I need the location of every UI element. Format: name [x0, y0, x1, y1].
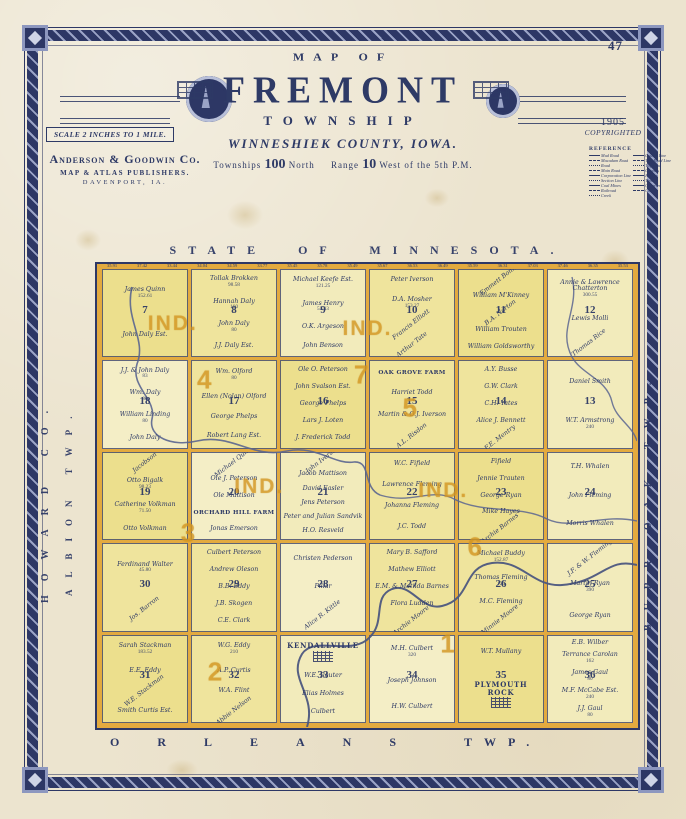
- lot-number: 35.45: [287, 263, 297, 268]
- parcel-owner-name: F.E. Mentry: [484, 424, 518, 449]
- lot-number: 35.53: [618, 263, 628, 268]
- legend-line-sample: [633, 190, 644, 191]
- section-cell-18: 18J.J. & John Daly83Wm. Daly80William Li…: [102, 360, 188, 448]
- parcel-label: Alice J. Bennett: [476, 418, 525, 425]
- parcel-owner-name: John Benson: [303, 343, 343, 350]
- parcel-label: Elias Holmes: [302, 691, 344, 698]
- parcel-acreage: 152.87: [477, 558, 525, 563]
- parcel-label: Archie Barnes: [481, 513, 521, 540]
- copyright-label: COPYRIGHTED: [578, 128, 648, 137]
- legend-line-sample: [633, 180, 644, 181]
- parcel-owner-name: Martin & O.J. Iverson: [378, 412, 446, 419]
- legend-line-sample: [589, 195, 600, 196]
- parcel-label: O.K. Argeson: [302, 324, 344, 331]
- south-label-orleans: ORLEANS: [110, 735, 434, 750]
- section-cell-20: 20Michael QuinnOle J. PetersonOle Mattis…: [191, 452, 277, 540]
- lot-number: 37.03: [528, 263, 538, 268]
- section-cell-7: 7James Quinn152.61John Daly Est.: [102, 269, 188, 357]
- parcel-owner-name: J.C. Todd: [398, 524, 426, 531]
- section-number: 26: [496, 578, 507, 590]
- parcel-label: William Goldsworthy: [468, 344, 535, 351]
- section-number: 10: [407, 304, 418, 316]
- parcel-acreage: 240: [562, 695, 619, 700]
- publisher-block: Anderson & Goodwin Co. MAP & ATLAS PUBLI…: [40, 152, 210, 186]
- section-cell-30: 30Ferdinand Walter45.80Jos. Barron: [102, 543, 188, 631]
- section-number: 11: [496, 304, 506, 316]
- parcel-acreage: 71.50: [114, 509, 175, 514]
- south-label-twp: TWP.: [464, 735, 541, 750]
- parcel-owner-name: Lars J. Loten: [303, 418, 344, 425]
- parcel-label: Culbert: [311, 709, 335, 716]
- parcel-label: Lewis Molli: [572, 316, 609, 323]
- parcel-acreage: 162: [562, 659, 618, 664]
- sections-grid: 7James Quinn152.61John Daly Est.8Tollak …: [102, 269, 633, 723]
- section-cell-16: 16Ole O. PetersonJohn Svalson Est.George…: [280, 360, 366, 448]
- legend-title: REFERENCE: [589, 146, 653, 152]
- legend-line-sample: [589, 185, 600, 186]
- corner-ornament: [638, 767, 664, 793]
- legend-right-column: County LineTwp Road LineTwp LineCountryH…: [633, 153, 671, 198]
- parcel-label: Michael Keefe Est.121.25: [293, 277, 353, 289]
- parcel-label: J.C. Todd: [398, 524, 426, 531]
- parcel-owner-name: Mathew Elliott: [388, 567, 435, 574]
- parcel-label: H.W. Culbert: [391, 704, 432, 711]
- parcel-owner-name: E.B. Wilber: [572, 640, 608, 647]
- section-number: 24: [585, 486, 596, 498]
- section-number: 28: [318, 578, 329, 590]
- parcel-acreage: 210: [218, 650, 250, 655]
- atlas-page: 47 MAP OF FREMONT TOWNSHIP WINNESHIEK CO…: [0, 0, 686, 819]
- section-cell-35: 35W.T. MullanyPLYMOUTH ROCK: [458, 635, 544, 723]
- section-number: 31: [140, 669, 151, 681]
- parcel-owner-name: George Ryan: [569, 613, 610, 620]
- parcel-acreage: 80: [578, 713, 603, 718]
- parcel-label: John Svalson Est.: [295, 384, 351, 391]
- lot-number: 35.49: [347, 263, 357, 268]
- legend-line-sample: [589, 155, 600, 156]
- parcel-label: Alice R. Kittle: [304, 599, 343, 631]
- parcel-label: Morris Whalen: [566, 521, 614, 528]
- twp-suffix: North: [289, 160, 315, 170]
- parcel-acreage: 80: [216, 376, 253, 381]
- section-cell-8: 8Tollak Brokken98.58Hannah Daly160John D…: [191, 269, 277, 357]
- parcel-label: H.O. Resveld: [302, 528, 343, 535]
- parcel-owner-name: William Goldsworthy: [468, 344, 535, 351]
- lot-number: 36.31: [498, 263, 508, 268]
- section-number: 9: [320, 304, 326, 316]
- parcel-label: Thomas Rice: [572, 328, 609, 357]
- section-cell-34: 34M.H. Culbert320Joseph JohnsonH.W. Culb…: [369, 635, 455, 723]
- section-number: 13: [585, 395, 596, 407]
- parcel-owner-name: Robert Lang Est.: [207, 433, 261, 440]
- parcel-label: James Quinn152.61: [125, 287, 166, 299]
- brick-ornament-icon: [473, 81, 509, 99]
- parcel-label: Michael Buddy152.87: [477, 551, 525, 563]
- section-number: 22: [407, 486, 418, 498]
- parcel-label: T.H. Whalen: [571, 464, 610, 471]
- lot-number: 37.42: [137, 263, 147, 268]
- parcel-label: Daniel Smith: [569, 379, 611, 386]
- parcel-label: Peter Iverson: [391, 277, 434, 284]
- lot-number: 35.59: [468, 263, 478, 268]
- corner-ornament: [638, 25, 664, 51]
- section-number: 19: [140, 486, 151, 498]
- reference-legend: REFERENCE Mud RoadMacadam RoadRoadMain R…: [589, 146, 653, 198]
- section-number: 16: [318, 395, 329, 407]
- parcel-label: W.C. Fifield: [394, 461, 430, 468]
- parcel-owner-name: Smith Curtis Est.: [118, 708, 173, 715]
- section-cell-33: 33KENDALLVILLEW.E. ReuterElias HolmesCul…: [280, 635, 366, 723]
- section-number: 33: [318, 669, 329, 681]
- survey-lot-numbers: 35.9137.4233.4434.0434.5933.7735.4535.78…: [97, 263, 638, 268]
- parcel-owner-name: W.T. Mullany: [481, 649, 522, 656]
- parcel-owner-name: Archie Moore: [393, 605, 432, 632]
- parcel-label: Lars J. Loten: [303, 418, 344, 425]
- parcel-owner-name: Jens Peterson: [301, 500, 345, 507]
- parcel-label: M.F. McCabe Est.240: [562, 688, 619, 700]
- parcel-owner-name: Lewis Molli: [572, 316, 609, 323]
- section-cell-22: 22W.C. FifieldLawrence FlemingJohanna Fl…: [369, 452, 455, 540]
- legend-line-sample: [589, 165, 600, 166]
- parcel-label: J.J. Gaul80: [578, 706, 603, 718]
- parcel-owner-name: J. Frederick Todd: [296, 435, 351, 442]
- section-cell-13: 13Daniel SmithW.T. Armstrong240: [547, 360, 633, 448]
- lot-number: 36.53: [407, 263, 417, 268]
- section-cell-36: 36E.B. WilberTerrance Carolan162James Ga…: [547, 635, 633, 723]
- section-number: 17: [229, 395, 240, 407]
- parcel-label: Peter and Julian Sandvik: [284, 514, 363, 521]
- section-number: 32: [229, 669, 240, 681]
- parcel-owner-name: ORCHARD HILL FARM: [194, 510, 275, 516]
- section-number: 15: [407, 395, 418, 407]
- parcel-label: Mathew Elliott: [388, 567, 435, 574]
- lot-number: 35.67: [377, 263, 387, 268]
- legend-item-label: Church: [645, 188, 658, 193]
- parcel-label: Johanna Fleming: [385, 503, 439, 510]
- parcel-owner-name: Culbert Peterson: [207, 550, 261, 557]
- parcel-owner-name: O.K. Argeson: [302, 324, 344, 331]
- parcel-label: John Benson: [303, 343, 343, 350]
- parcel-label: W.A. Flint: [219, 688, 250, 695]
- lot-number: 37.46: [558, 263, 568, 268]
- parcel-label: Wm. Olford80: [216, 369, 253, 381]
- section-cell-29: 29Culbert PetersonAndrew OlesonB.B. Eddy…: [191, 543, 277, 631]
- parcel-owner-name: Fifield: [491, 459, 511, 466]
- legend-line-sample: [589, 180, 600, 181]
- parcel-label: Abbie Nelson: [215, 695, 253, 723]
- parcel-owner-name: G.W. Clark: [484, 384, 518, 391]
- parcel-owner-name: A.L. Risdon: [395, 422, 428, 449]
- parcel-label: G.W. Clark: [484, 384, 518, 391]
- parcel-acreage: 80: [219, 328, 250, 333]
- parcel-owner-name: Peter Iverson: [391, 277, 434, 284]
- parcel-label: Terrance Carolan162: [562, 652, 618, 664]
- legend-line-sample: [633, 175, 644, 176]
- parcel-owner-name: Christen Pederson: [294, 556, 353, 563]
- lot-number: 34.04: [197, 263, 207, 268]
- publisher-line3: DAVENPORT, IA.: [40, 179, 210, 186]
- section-cell-31: 31Sarah Stackman183.52E.E. EddyW.E. Stac…: [102, 635, 188, 723]
- parcel-owner-name: J.F. & W. Fleming: [566, 543, 613, 578]
- parcel-owner-name: W.C. Fifield: [394, 461, 430, 468]
- parcel-label: Otto Volkman: [123, 526, 166, 533]
- east-margin-label: BURR OAK TWP.: [643, 280, 654, 720]
- parcel-label: Jennie Trauten: [477, 476, 524, 483]
- legend-line-sample: [589, 175, 600, 176]
- section-number: 34: [407, 669, 418, 681]
- south-margin-label: ORLEANS TWP.: [110, 735, 610, 750]
- parcel-owner-name: John Daly Est.: [122, 332, 167, 339]
- north-margin-label: STATE OF MINNESOTA.: [95, 243, 640, 258]
- parcel-owner-name: Annie & Lawrence Chatterton: [549, 280, 631, 294]
- parcel-label: Tollak Brokken98.58: [210, 276, 258, 288]
- parcel-label: Fifield: [491, 459, 511, 466]
- parcel-owner-name: A.Y. Busse: [485, 367, 518, 374]
- parcel-label: William Trouten: [475, 327, 527, 334]
- parcel-label: Jens Peterson: [301, 500, 345, 507]
- parcel-owner-name: Elias Holmes: [302, 691, 344, 698]
- parcel-acreage: 83: [121, 374, 169, 379]
- section-cell-14: 14A.Y. BusseG.W. ClarkC.H. YatesAlice J.…: [458, 360, 544, 448]
- section-number: 21: [318, 486, 329, 498]
- legend-left-column: Mud RoadMacadam RoadRoadMain RoadCorpora…: [589, 153, 631, 198]
- legend-item: Church: [633, 188, 671, 193]
- legend-item-label: Creek: [601, 193, 611, 198]
- parcel-label: M.H. Culbert320: [391, 646, 433, 658]
- parcel-owner-name: Culbert: [311, 709, 335, 716]
- parcel-label: Martin & O.J. Iverson: [378, 412, 446, 419]
- legend-line-sample: [633, 170, 644, 171]
- corner-ornament: [22, 25, 48, 51]
- village-plat-icon: [313, 651, 333, 662]
- farm-label: ORCHARD HILL FARM: [194, 510, 275, 516]
- parcel-acreage: 121.25: [293, 284, 353, 289]
- parcel-owner-name: T.H. Whalen: [571, 464, 610, 471]
- village-label: KENDALLVILLE: [287, 642, 359, 662]
- parcel-owner-name: Minnie Moore: [481, 604, 521, 632]
- parcel-owner-name: John Daly: [130, 435, 161, 442]
- parcel-label: Jonas Emerson: [210, 526, 258, 533]
- legend-line-sample: [633, 160, 644, 161]
- section-cell-15: 15OAK GROVE FARMHarriet ToddMartin & O.J…: [369, 360, 455, 448]
- parcel-owner-name: Morris Whalen: [566, 521, 614, 528]
- section-number: 36: [585, 669, 596, 681]
- parcel-owner-name: Abbie Nelson: [215, 695, 253, 723]
- range-suffix: West of the 5th P.M.: [379, 160, 472, 170]
- section-cell-12: 12Annie & Lawrence Chatterton300.55Lewis…: [547, 269, 633, 357]
- range-label: Range: [331, 160, 359, 170]
- legend-line-sample: [589, 190, 600, 191]
- parcel-owner-name: Jos. Barron: [129, 596, 161, 623]
- parcel-label: William Linding80: [120, 412, 171, 424]
- village-label: PLYMOUTH ROCK: [460, 681, 542, 708]
- parcel-label: Andrew Oleson: [210, 567, 259, 574]
- section-cell-10: 10Peter IversonD.A. Mosher153.27Francis …: [369, 269, 455, 357]
- parcel-acreage: 240: [566, 425, 615, 430]
- section-number: 18: [140, 395, 151, 407]
- section-cell-21: 21John IversonJacob MattisonDavid Easler…: [280, 452, 366, 540]
- section-number: 7: [142, 304, 148, 316]
- parcel-label: Mary B. Safford: [387, 550, 438, 557]
- parcel-owner-name: W.A. Flint: [219, 688, 250, 695]
- parcel-owner-name: Archie Barnes: [481, 513, 521, 540]
- section-number: 20: [229, 486, 240, 498]
- west-margin-label-county: HOWARD CO.: [40, 280, 51, 720]
- copyright-block: 1905 COPYRIGHTED: [578, 117, 648, 137]
- west-margin-label-twp: ALBION TWP.: [64, 280, 74, 720]
- parcel-label: Archie Moore: [393, 605, 432, 632]
- parcel-label: George Phelps: [211, 414, 258, 421]
- section-cell-28: 28Christen PedersonPillarAlice R. Kittle: [280, 543, 366, 631]
- legend-line-sample: [633, 165, 644, 166]
- parcel-owner-name: PLYMOUTH ROCK: [460, 681, 542, 696]
- parcel-acreage: 183.52: [119, 650, 172, 655]
- parcel-owner-name: Ole O. Peterson: [298, 367, 348, 374]
- parcel-label: Christen Pederson: [294, 556, 353, 563]
- section-cell-17: 17Wm. Olford80Ellen (Nolan) OlfordGeorge…: [191, 360, 277, 448]
- twp-number: 100: [265, 157, 286, 172]
- parcel-label: A.L. Risdon: [395, 422, 428, 449]
- scale-note: SCALE 2 INCHES TO 1 MILE.: [46, 127, 174, 142]
- publisher-name: Anderson & Goodwin Co.: [40, 152, 210, 167]
- parcel-owner-name: OAK GROVE FARM: [378, 370, 445, 376]
- brick-ornament-icon: [177, 81, 213, 99]
- lot-number: 36.35: [588, 263, 598, 268]
- legend-line-sample: [589, 170, 600, 171]
- parcel-owner-name: J.J. Daly Est.: [215, 343, 254, 350]
- parcel-owner-name: Alice J. Bennett: [476, 418, 525, 425]
- lot-number: 36.49: [437, 263, 447, 268]
- map-title: FREMONT: [223, 68, 463, 112]
- parcel-label: J. Frederick Todd: [296, 435, 351, 442]
- parcel-acreage: 98.58: [210, 283, 258, 288]
- section-number: 23: [496, 486, 507, 498]
- parcel-label: Culbert Peterson: [207, 550, 261, 557]
- parcel-acreage: 300.55: [549, 293, 631, 298]
- lot-number: 35.78: [317, 263, 327, 268]
- parcel-owner-name: William Trouten: [475, 327, 527, 334]
- parcel-label: John Daly80: [219, 321, 250, 333]
- section-cell-11: 11Emmett BonnerWilliam M'KinneyB.A. Nort…: [458, 269, 544, 357]
- section-number: 8: [231, 304, 237, 316]
- section-cell-24: 24T.H. WhalenJohn FlemingMorris Whalen: [547, 452, 633, 540]
- parcel-label: John Daly Est.: [122, 332, 167, 339]
- parcel-label: W.G. Eddy210: [218, 643, 250, 655]
- parcel-label: Smith Curtis Est.: [118, 708, 173, 715]
- parcel-owner-name: Jennie Trauten: [477, 476, 524, 483]
- parcel-owner-name: Jacobson: [132, 452, 159, 475]
- parcel-label: E.B. Wilber: [572, 640, 608, 647]
- parcel-acreage: 45.80: [117, 568, 173, 573]
- parcel-label: F.E. Mentry: [484, 424, 518, 449]
- section-cell-19: 19JacobsonOtto Bigalk98.23Catherine Volk…: [102, 452, 188, 540]
- section-cell-25: 25J.F. & W. FlemingMartin Ryan390George …: [547, 543, 633, 631]
- parcel-label: Minnie Moore: [481, 604, 521, 632]
- parcel-owner-name: Andrew Oleson: [210, 567, 259, 574]
- corner-ornament: [22, 767, 48, 793]
- section-cell-27: 27Mary B. SaffordMathew ElliottE.M. & Ma…: [369, 543, 455, 631]
- farm-label: OAK GROVE FARM: [378, 370, 445, 376]
- publisher-line2: MAP & ATLAS PUBLISHERS.: [40, 169, 210, 177]
- section-cell-23: 23FifieldJennie TrautenGeorge RyanMike H…: [458, 452, 544, 540]
- parcel-label: J.F. & W. Fleming: [566, 543, 613, 578]
- parcel-label: Annie & Lawrence Chatterton300.55: [549, 280, 631, 299]
- parcel-label: John Daly: [130, 435, 161, 442]
- parcel-acreage: 152.61: [125, 294, 166, 299]
- parcel-owner-name: J.B. Skogen: [216, 601, 252, 608]
- parcel-label: A.Y. Busse: [485, 367, 518, 374]
- parcel-label: Ferdinand Walter45.80: [117, 562, 173, 574]
- parcel-owner-name: John Svalson Est.: [295, 384, 351, 391]
- section-number: 30: [140, 578, 151, 590]
- parcel-label: Jos. Barron: [129, 596, 161, 623]
- parcel-owner-name: George Phelps: [211, 414, 258, 421]
- lot-number: 35.91: [107, 263, 117, 268]
- section-number: 35: [496, 669, 507, 681]
- arc-title: MAP OF: [0, 51, 686, 65]
- lot-number: 34.59: [227, 263, 237, 268]
- parcel-label: W.T. Mullany: [481, 649, 522, 656]
- parcel-label: J.J. Daly Est.: [215, 343, 254, 350]
- parcel-label: J.J. & John Daly83: [121, 368, 169, 380]
- section-number: 25: [585, 578, 596, 590]
- parcel-owner-name: Johanna Fleming: [385, 503, 439, 510]
- parcel-label: Jacobson: [132, 452, 159, 475]
- parcel-owner-name: Mary B. Safford: [387, 550, 438, 557]
- section-number: 14: [496, 395, 507, 407]
- parcel-label: George Ryan: [569, 613, 610, 620]
- parcel-acreage: 80: [120, 419, 171, 424]
- parcel-owner-name: C.E. Clark: [218, 618, 251, 625]
- section-cell-26: 26Michael Buddy152.87Thomas Fleming120M.…: [458, 543, 544, 631]
- village-plat-icon: [491, 697, 511, 708]
- parcel-owner-name: KENDALLVILLE: [287, 642, 359, 650]
- legend-line-sample: [633, 185, 644, 186]
- twp-label: Townships: [213, 160, 261, 170]
- section-number: 27: [407, 578, 418, 590]
- parcel-label: Ole O. Peterson: [298, 367, 348, 374]
- parcel-owner-name: Thomas Rice: [572, 328, 609, 357]
- lot-number: 33.44: [167, 263, 177, 268]
- parcel-acreage: 320: [391, 653, 433, 658]
- township-map: 35.9137.4233.4434.0434.5933.7735.4535.78…: [95, 262, 640, 730]
- parcel-label: J.B. Skogen: [216, 601, 252, 608]
- parcel-label: C.E. Clark: [218, 618, 251, 625]
- section-cell-9: 9Michael Keefe Est.121.25James Henry52.3…: [280, 269, 366, 357]
- parcel-owner-name: Jonas Emerson: [210, 526, 258, 533]
- section-cell-32: 32W.G. Eddy210A.P. CurtisW.A. FlintAbbie…: [191, 635, 277, 723]
- copyright-year: 1905: [578, 117, 648, 128]
- legend-item: Creek: [589, 193, 631, 198]
- section-number: 29: [229, 578, 240, 590]
- lot-number: 33.77: [257, 263, 267, 268]
- parcel-owner-name: H.W. Culbert: [391, 704, 432, 711]
- parcel-label: Sarah Stackman183.52: [119, 643, 172, 655]
- parcel-label: Catherine Volkman71.50: [114, 502, 175, 514]
- legend-line-sample: [633, 155, 644, 156]
- range-number: 10: [362, 157, 376, 172]
- parcel-label: W.T. Armstrong240: [566, 418, 615, 430]
- parcel-label: Robert Lang Est.: [207, 433, 261, 440]
- parcel-owner-name: Otto Volkman: [123, 526, 166, 533]
- parcel-owner-name: Peter and Julian Sandvik: [284, 514, 363, 521]
- parcel-owner-name: Daniel Smith: [569, 379, 611, 386]
- parcel-owner-name: Alice R. Kittle: [304, 599, 343, 631]
- section-number: 12: [585, 304, 596, 316]
- legend-line-sample: [589, 160, 600, 161]
- parcel-owner-name: H.O. Resveld: [302, 528, 343, 535]
